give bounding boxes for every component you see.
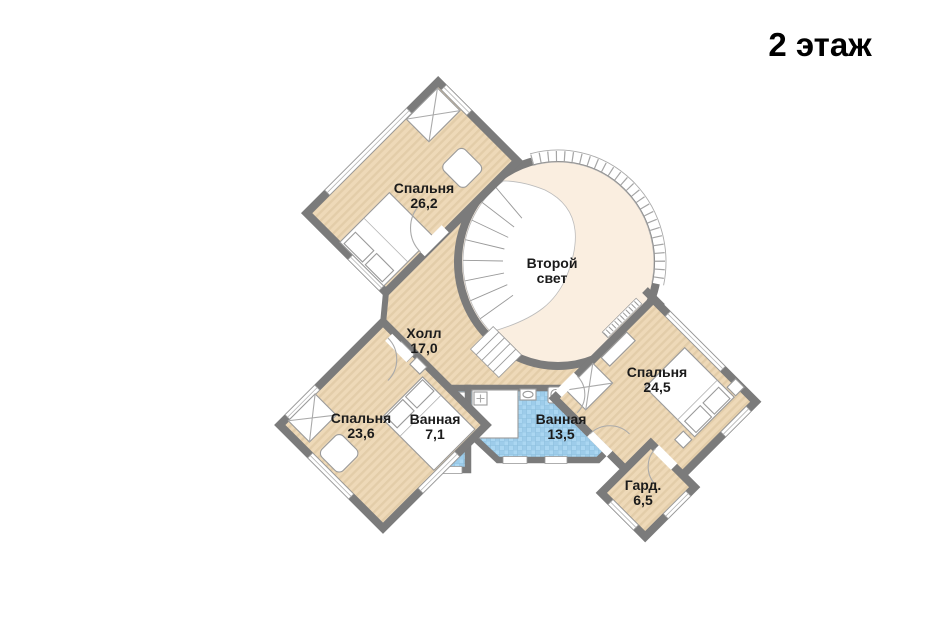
window bbox=[503, 457, 527, 464]
label-hall-area: 17,0 bbox=[410, 340, 437, 356]
label-bath-big-area: 13,5 bbox=[547, 426, 574, 442]
page-title: 2 этаж bbox=[768, 26, 872, 63]
window bbox=[545, 457, 567, 464]
label-bedroom-top-area: 26,2 bbox=[410, 195, 437, 211]
label-wardrobe-area: 6,5 bbox=[633, 492, 653, 508]
label-second-light-line1: Второй bbox=[527, 255, 578, 271]
floor-plan-canvas: Спальня 26,2 Второй свет Холл 17,0 Спаль… bbox=[0, 0, 925, 617]
floor-plan-page: Спальня 26,2 Второй свет Холл 17,0 Спаль… bbox=[0, 0, 925, 617]
label-bath-small-name: Ванная bbox=[410, 411, 461, 427]
label-bath-small-area: 7,1 bbox=[425, 426, 445, 442]
label-second-light-line2: свет bbox=[537, 270, 568, 286]
label-bedroom-left-name: Спальня bbox=[331, 410, 391, 426]
label-bedroom-right-area: 24,5 bbox=[643, 379, 670, 395]
label-bedroom-left-area: 23,6 bbox=[347, 425, 374, 441]
label-wardrobe-name: Гард. bbox=[625, 477, 662, 493]
label-hall-name: Холл bbox=[406, 325, 441, 341]
label-bedroom-right-name: Спальня bbox=[627, 364, 687, 380]
label-bedroom-top-name: Спальня bbox=[394, 180, 454, 196]
label-bath-big-name: Ванная bbox=[536, 411, 587, 427]
washbasin bbox=[520, 389, 536, 400]
